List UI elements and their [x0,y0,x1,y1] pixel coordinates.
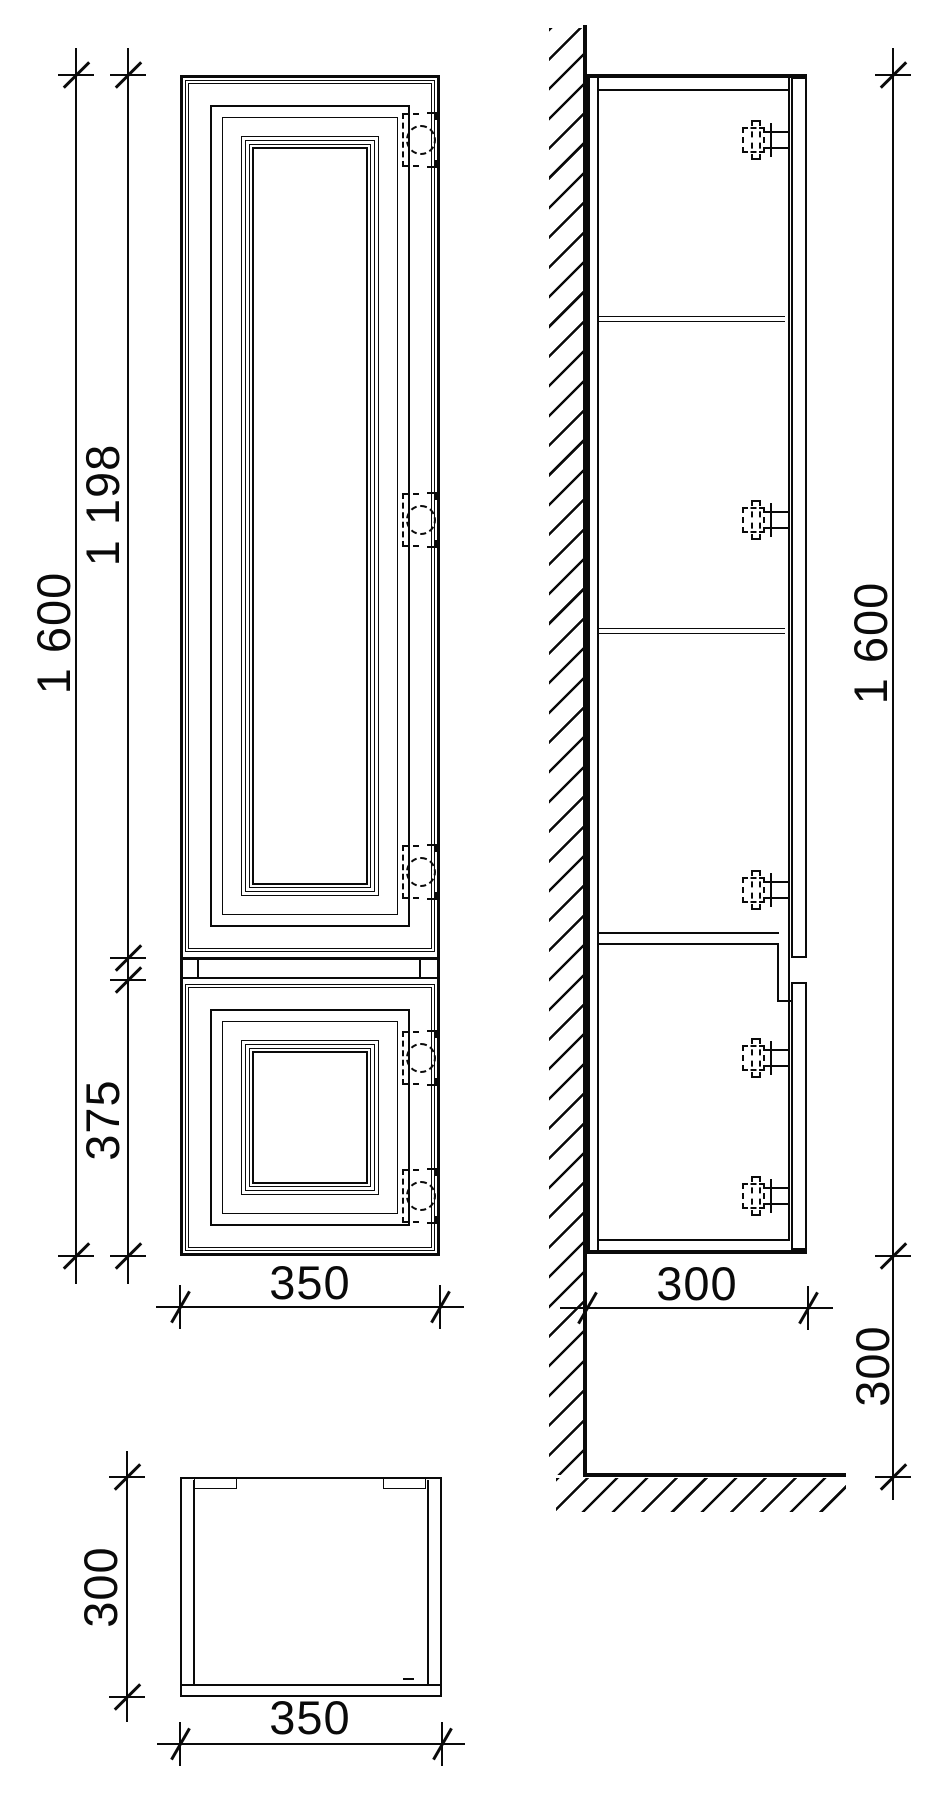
side-top-inner-line [599,89,790,91]
hinge-mark [770,873,772,907]
hinge-mark [435,1030,437,1038]
hinge-arm-icon [751,1176,761,1216]
side-mid-rail [599,932,779,945]
dim-extension [58,1255,94,1257]
dim-extension [58,74,94,76]
hinge-arm-icon [751,120,761,160]
dim-extension [110,1255,146,1257]
floor-line [583,1473,846,1477]
dim-label-plan-width: 350 [235,1690,385,1744]
hinge-mark [435,160,437,168]
hinge-mark [770,123,772,157]
dim-extension [875,74,911,76]
dim-label-side-depth: 300 [622,1256,772,1310]
hinge-icon [738,868,792,912]
hinge-icon [738,1174,792,1218]
dim-line [892,48,894,1500]
dim-label-side-floor-clearance: 300 [845,1291,899,1441]
hinge-cup-icon [406,857,436,887]
hinge-mark [764,897,790,899]
shelf-line [599,316,785,322]
dim-label-front-upper-door-height: 1 198 [75,430,129,580]
plan-side-panel-line [427,1480,429,1684]
plan-side-panel-line [193,1480,195,1684]
hinge-cup-icon [406,505,436,535]
hinge-cup-icon [406,125,436,155]
hinge-mark [435,492,437,500]
side-bottom-inner-line [599,1239,790,1241]
hinge-mark [764,511,790,513]
dim-extension [110,957,146,959]
hinge-arm-icon [751,870,761,910]
hinge-icon [738,1036,792,1080]
dim-label-plan-depth: 300 [73,1512,127,1662]
wall-hatch-pattern [549,28,583,1475]
side-lower-door-slab [791,982,807,1250]
dim-label-front-lower-door-height: 375 [75,1045,129,1195]
hinge-mark [764,1049,790,1051]
hinge-mark [770,503,772,537]
hinge-icon [738,498,792,542]
plan-hinge-notch [194,1477,237,1489]
side-back-line [587,75,590,1253]
shelf-line [599,628,785,634]
hinge-mark [435,540,437,548]
plan-door-line [182,1684,440,1686]
dim-extension [875,1476,911,1478]
hinge-mark [764,1187,790,1189]
dim-extension [109,1696,145,1698]
dim-extension [179,1722,181,1766]
floor-hatch-pattern [556,1478,846,1512]
dim-label-front-overall-height: 1 600 [26,558,80,708]
dim-extension [179,1285,181,1329]
dim-extension [109,1476,145,1478]
hinge-icon [399,112,439,168]
plan-handle-mark [403,1678,414,1680]
hinge-icon [738,118,792,162]
hinge-mark [764,881,790,883]
door-center-panel [252,147,368,885]
front-mid-rail-stub [419,957,421,979]
dim-extension [441,1722,443,1766]
hinge-icon [399,844,439,900]
front-mid-rail-stub [197,957,199,979]
hinge-arm-icon [751,1038,761,1078]
hinge-mark [764,131,790,133]
side-back-inner-line [597,78,599,1250]
hinge-icon [399,1030,439,1086]
plan-hinge-notch [383,1477,426,1489]
hinge-arm-icon [751,500,761,540]
side-bottom-line [583,1250,807,1254]
dim-label-side-overall-height: 1 600 [843,568,897,718]
hinge-mark [435,1216,437,1224]
dim-extension [807,1286,809,1330]
hinge-mark [435,1078,437,1086]
technical-drawing-canvas: 1 600 1 198 375 350 [0,0,944,1800]
dim-label-front-width: 350 [235,1255,385,1309]
hinge-mark [764,1203,790,1205]
hinge-cup-icon [406,1181,436,1211]
front-mid-rail-line [180,957,440,960]
hinge-mark [435,892,437,900]
hinge-icon [399,1168,439,1224]
side-door-recess-line [777,945,779,1002]
hinge-mark [770,1179,772,1213]
side-upper-door-slab [791,77,807,958]
dim-extension [110,74,146,76]
hinge-mark [770,1041,772,1075]
hinge-mark [435,844,437,852]
hinge-cup-icon [406,1043,436,1073]
dim-extension [875,1255,911,1257]
dim-extension [110,979,146,981]
hinge-mark [764,527,790,529]
plan-outline [180,1477,442,1697]
door-center-panel [252,1051,368,1184]
hinge-icon [399,492,439,548]
side-door-recess-line [777,1000,791,1002]
hinge-mark [764,1065,790,1067]
dim-extension [439,1285,441,1329]
hinge-mark [435,112,437,120]
hinge-mark [764,147,790,149]
hinge-mark [435,1168,437,1176]
side-top-line [583,74,807,78]
